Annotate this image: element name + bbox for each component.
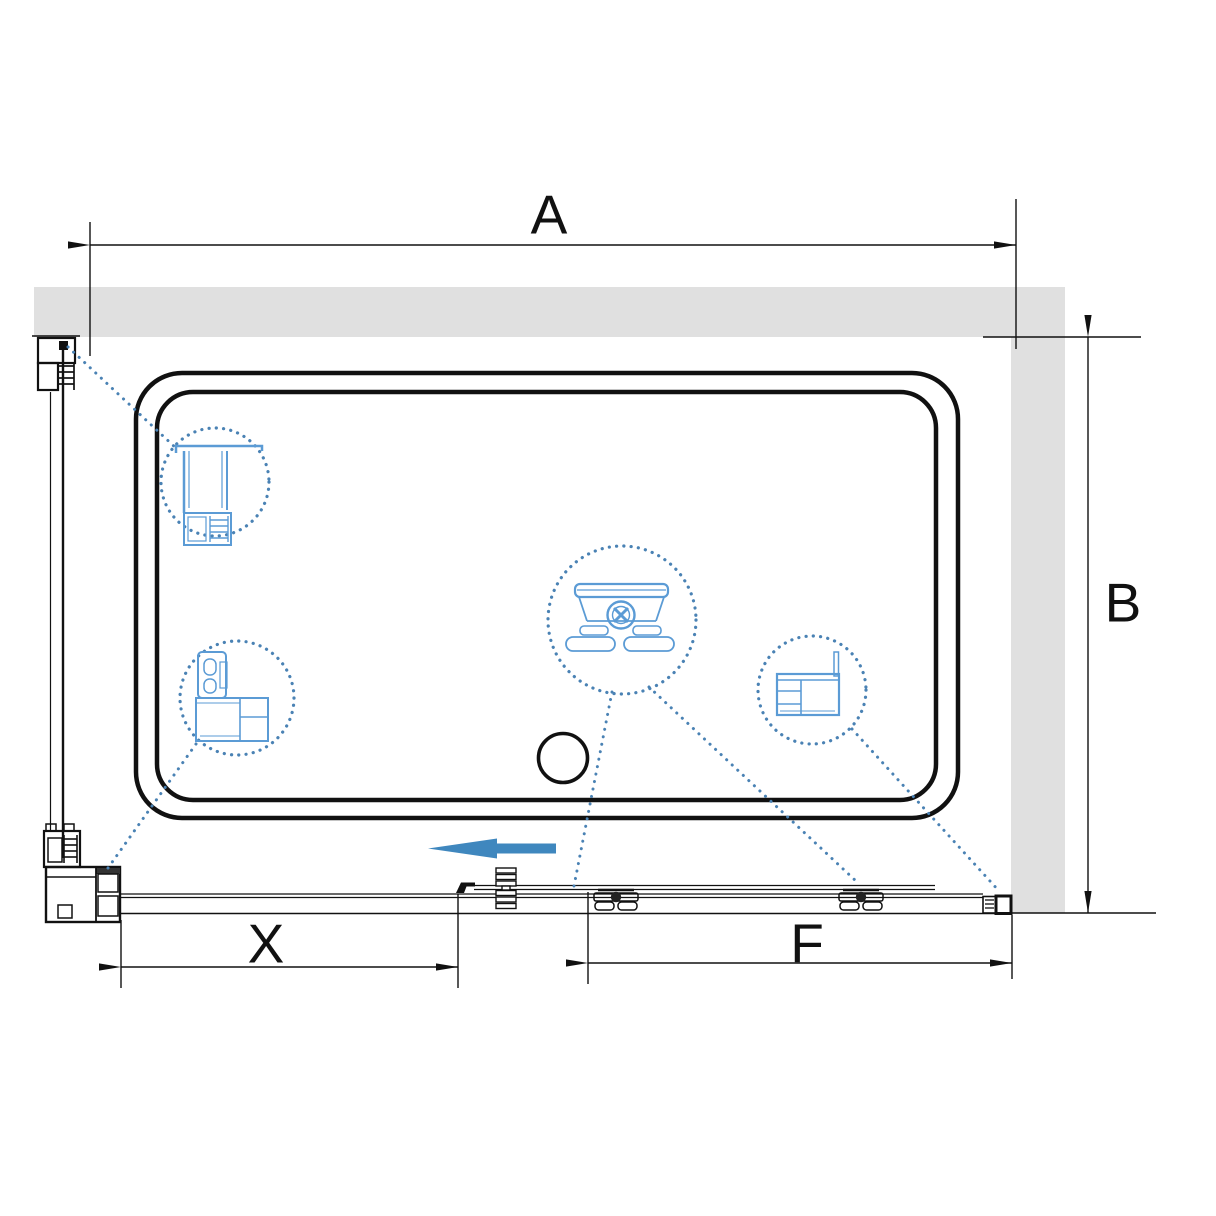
corner-floor-block (46, 867, 120, 922)
corner-post-profile-section (196, 652, 268, 741)
wall-end-profile (983, 896, 1011, 914)
seal-serration (58, 363, 74, 390)
side-glass-panel (51, 350, 64, 858)
wall-profile-with-glass-section-circle (758, 636, 866, 744)
dim-label-b: B (1105, 576, 1142, 631)
slide-direction-arrow-icon (428, 839, 556, 859)
top-rail-profile-section (176, 446, 262, 545)
shower-enclosure-top-view-drawing (0, 0, 1216, 1216)
roller-carriage-detail (566, 584, 674, 651)
magnetic-seal-stack (496, 868, 516, 909)
roller-left (594, 890, 638, 910)
wall-top (34, 287, 1065, 337)
dimension-x-lines (121, 894, 458, 988)
drain-outlet-circle (539, 734, 588, 783)
seal-serration (64, 835, 77, 863)
wall-profile-with-glass-section (777, 652, 839, 715)
roller-right (839, 890, 883, 910)
wall-right (1011, 337, 1065, 913)
door-handle (456, 883, 475, 894)
roller-carriage-detail-circle (548, 546, 696, 694)
dim-label-f: F (790, 917, 824, 972)
diagram-canvas: A B X F (0, 0, 1216, 1216)
bottom-glass-clamp (44, 824, 80, 867)
callout-circles (161, 428, 866, 755)
top-wall-bracket (32, 336, 80, 390)
glass-clamp-nub (59, 341, 68, 350)
bottom-rail-assembly (120, 868, 1011, 914)
dim-label-a: A (531, 188, 568, 243)
dim-label-x: X (248, 917, 285, 972)
